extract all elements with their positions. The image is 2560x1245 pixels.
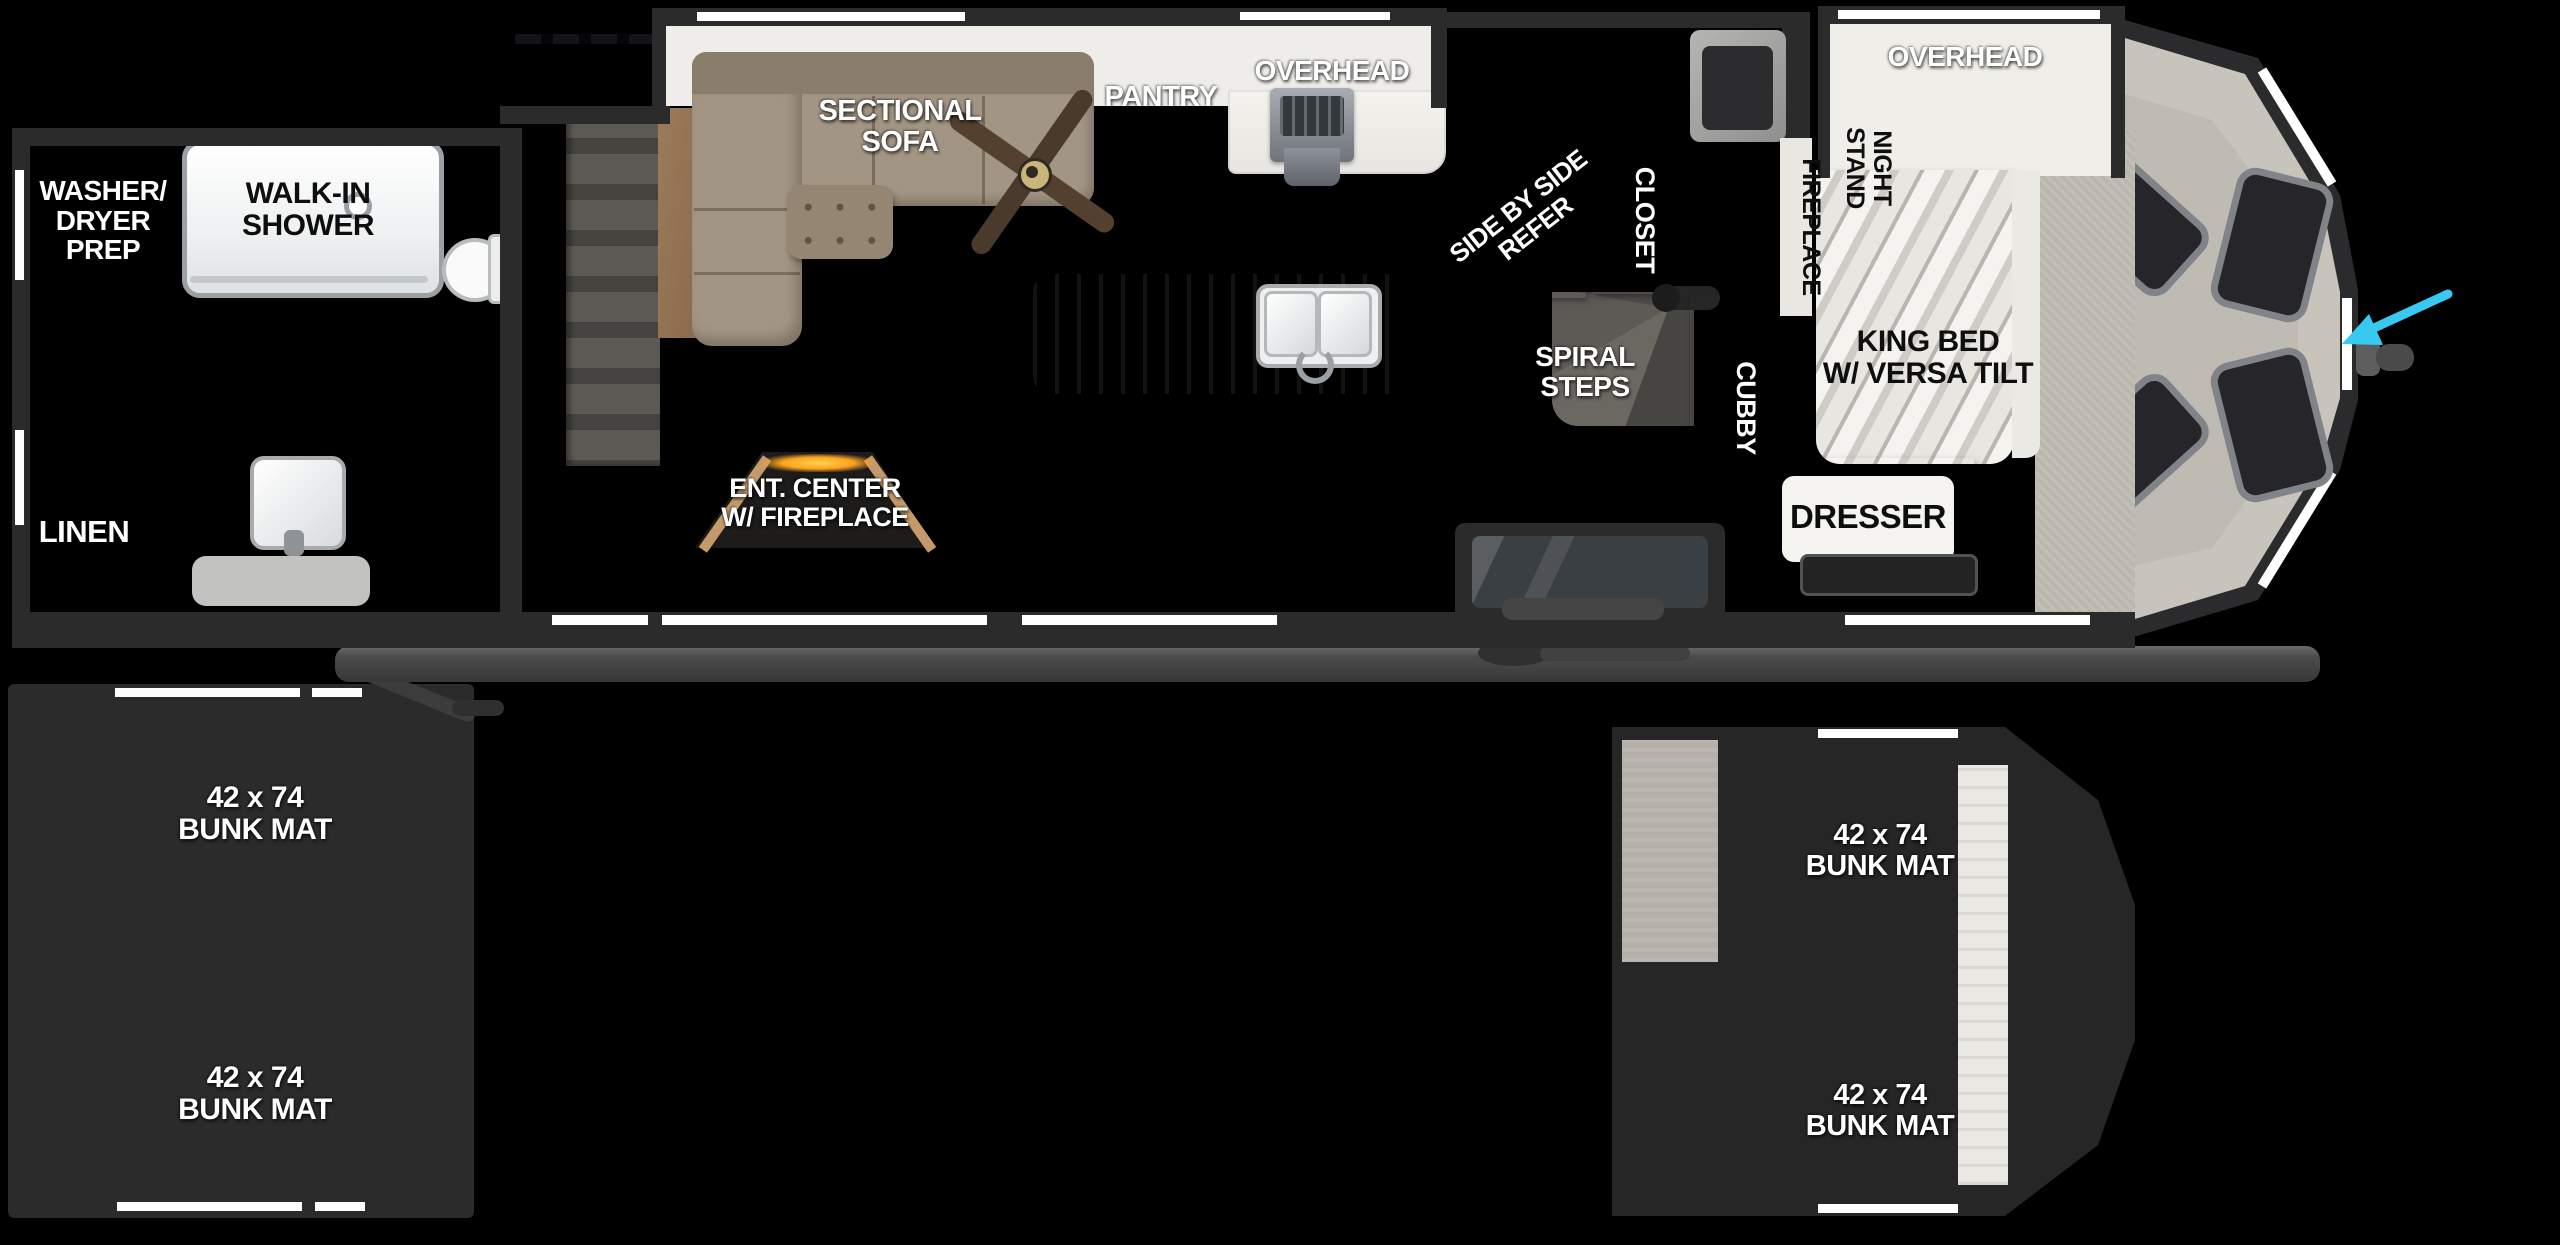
cubby-label: CUBBY bbox=[1704, 333, 1760, 483]
bottom-accent-1 bbox=[552, 615, 648, 625]
pantry-label: PANTRY bbox=[1086, 82, 1236, 113]
stair-knee-wall bbox=[518, 278, 568, 528]
bathroom-right-wall bbox=[500, 128, 522, 648]
closet-label: CLOSET bbox=[1603, 145, 1659, 295]
slide-accent-1 bbox=[697, 12, 965, 21]
bunk-room-left-wall-band bbox=[24, 700, 90, 1202]
rv-floorplan-diagram: WASHER/ DRYER PREP WALK-IN SHOWER LINEN … bbox=[0, 0, 2560, 1245]
bunk-room-right-landing bbox=[1622, 740, 1718, 962]
sectional-sofa-label: SECTIONAL SOFA bbox=[790, 96, 1010, 157]
vanity-faucet bbox=[284, 530, 304, 556]
chassis-rail bbox=[335, 646, 2320, 682]
tv-screen bbox=[1702, 46, 1773, 130]
bunk-mat-left-1-label: 42 x 74 BUNK MAT bbox=[140, 782, 370, 846]
loft-stairs bbox=[566, 108, 660, 466]
kitchen-top-wall bbox=[1445, 12, 1805, 28]
stairs-top-wall bbox=[500, 106, 670, 124]
king-bed-sheet bbox=[2012, 170, 2040, 458]
bathroom-top-wall bbox=[12, 128, 520, 146]
bathroom-bottom-wall bbox=[12, 612, 522, 648]
island-sink-basin-right bbox=[1318, 291, 1372, 357]
slide-accent-2 bbox=[1240, 12, 1390, 20]
island-faucet bbox=[1296, 346, 1334, 384]
night-stand-label: NIGHT STAND bbox=[1835, 103, 1895, 233]
left-wall-accent-2 bbox=[15, 430, 24, 525]
sofa-seam-3 bbox=[694, 208, 800, 211]
bunk-right-nightstand-side bbox=[1858, 962, 1882, 1018]
bunk-mat-right-1-label: 42 x 74 BUNK MAT bbox=[1790, 820, 1970, 881]
bath-mat bbox=[192, 556, 370, 606]
dining-chair-3 bbox=[1075, 390, 1147, 442]
hitch-pointer-arrow-line bbox=[2374, 294, 2448, 328]
range-hood bbox=[1284, 148, 1340, 186]
spiral-steps-label: SPIRAL STEPS bbox=[1500, 342, 1670, 401]
dining-chair-2 bbox=[1165, 236, 1240, 278]
stabilizer-jack-foot bbox=[452, 700, 504, 716]
bottom-window-3 bbox=[1012, 548, 1288, 604]
fireplace-label: FIREPLACE bbox=[1768, 137, 1824, 317]
bunk-left-nightstand-side bbox=[192, 915, 218, 977]
dresser-tv bbox=[1800, 554, 1978, 596]
ceiling-fan-hub-center bbox=[1026, 166, 1038, 178]
bunkL-accent-top-1 bbox=[115, 688, 300, 697]
overhead-kitchen-label: OVERHEAD bbox=[1232, 56, 1432, 86]
bedroom-bottom-accent bbox=[1845, 615, 2090, 625]
dining-chair-4 bbox=[1162, 390, 1235, 442]
fireplace-glow bbox=[762, 454, 874, 472]
sectional-sofa-back bbox=[692, 52, 1094, 98]
shower-glass-line bbox=[190, 276, 428, 283]
overhead-bedroom-label: OVERHEAD bbox=[1865, 42, 2065, 72]
entry-step-rod bbox=[1540, 646, 1690, 661]
king-bed-label: KING BED W/ VERSA TILT bbox=[1804, 326, 2052, 390]
sectional-sofa-chaise bbox=[692, 94, 802, 346]
bunk-mat-right-2-label: 42 x 74 BUNK MAT bbox=[1790, 1080, 1970, 1141]
dining-chair-1 bbox=[1078, 236, 1150, 278]
walk-in-shower-label: WALK-IN SHOWER bbox=[200, 178, 416, 242]
bunkL-accent-top-2 bbox=[312, 688, 362, 697]
bottom-window-2 bbox=[652, 546, 999, 606]
bunkL-accent-bottom-1 bbox=[117, 1202, 302, 1211]
bedroom-slide-accent bbox=[1838, 10, 2100, 19]
bottom-accent-2 bbox=[662, 615, 987, 625]
sofa-seam-4 bbox=[694, 272, 800, 275]
ent-center-label: ENT. CENTER W/ FIREPLACE bbox=[700, 474, 930, 531]
bottom-accent-3 bbox=[1022, 615, 1277, 625]
left-wall-accent-1 bbox=[15, 170, 24, 280]
bunkR-accent-top bbox=[1818, 729, 1958, 738]
ottoman bbox=[787, 185, 893, 259]
entry-door-step bbox=[1502, 598, 1664, 620]
dresser-label: DRESSER bbox=[1784, 500, 1952, 535]
bunkL-accent-bottom-2 bbox=[315, 1202, 365, 1211]
linen-label: LINEN bbox=[16, 516, 152, 549]
sofa-slideout-left-wall bbox=[652, 8, 666, 108]
washer-dryer-prep-label: WASHER/ DRYER PREP bbox=[30, 176, 176, 265]
hitch-coupler bbox=[2376, 344, 2414, 371]
bedroom-slideout-right-wall bbox=[2111, 6, 2125, 178]
bunk-mat-left-2-label: 42 x 74 BUNK MAT bbox=[140, 1062, 370, 1126]
range-grates bbox=[1280, 96, 1344, 136]
bunkR-accent-bottom bbox=[1818, 1204, 1958, 1213]
